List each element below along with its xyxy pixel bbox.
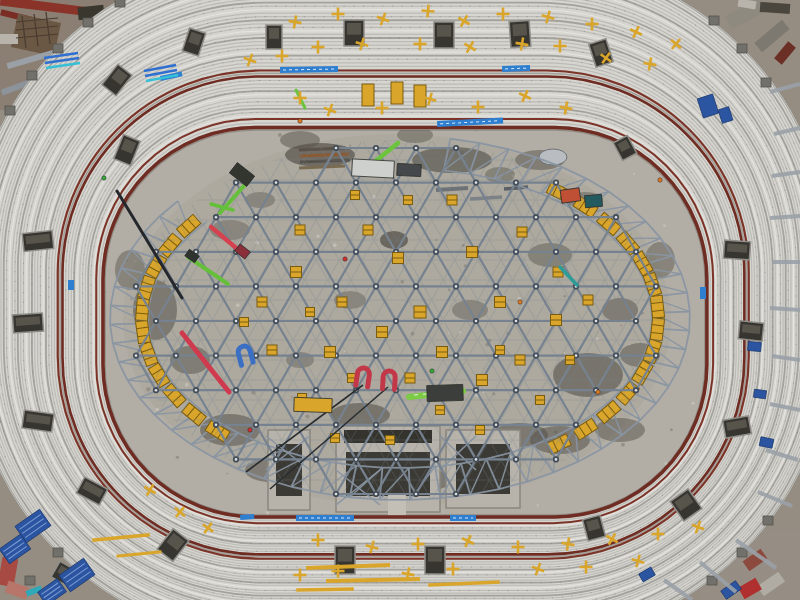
- vehicle-body: [427, 384, 464, 401]
- truss-outer-chord: [689, 312, 690, 331]
- ground-speckle: [663, 224, 666, 227]
- anchor-bar: [585, 561, 588, 574]
- vomitory-stair: [269, 28, 279, 39]
- stadium-construction-aerial-photo: [0, 0, 800, 600]
- ground-speckle: [266, 511, 269, 514]
- lattice-node-cap: [515, 458, 518, 461]
- anchor-bar: [317, 534, 320, 547]
- anchor-bar: [657, 528, 660, 541]
- ground-speckle: [349, 145, 351, 147]
- lattice-node-cap: [515, 251, 518, 254]
- lattice-node-cap: [215, 216, 218, 219]
- lattice-node-cap: [295, 424, 298, 427]
- lattice-node-cap: [375, 493, 378, 496]
- support-tower: [136, 298, 150, 321]
- support-tower: [650, 318, 664, 341]
- lattice-node-cap: [595, 320, 598, 323]
- lattice-node-cap: [595, 251, 598, 254]
- lattice-node-cap: [335, 493, 338, 496]
- ground-speckle: [155, 408, 159, 412]
- anchor-bar: [299, 569, 302, 582]
- lattice-node-cap: [475, 320, 478, 323]
- debris: [0, 34, 18, 44]
- lattice-node-cap: [515, 181, 518, 184]
- facade-post: [737, 548, 747, 557]
- anchor-bar: [317, 41, 320, 54]
- lattice-node-cap: [535, 216, 538, 219]
- tarp-group: [754, 389, 767, 399]
- facade-post: [763, 516, 773, 525]
- wet-ground-patch: [280, 131, 320, 149]
- lattice-node-cap: [355, 181, 358, 184]
- vehicle-body: [352, 159, 395, 178]
- steel-beam: [328, 579, 418, 581]
- ground-speckle: [664, 462, 667, 465]
- vomitory-stair: [428, 549, 442, 562]
- anchor-bar: [559, 40, 562, 53]
- anchor-bar: [502, 8, 505, 21]
- truss-outer-chord: [110, 305, 111, 324]
- vomitory: [12, 313, 43, 333]
- lattice-node-cap: [495, 216, 498, 219]
- lattice-node-cap: [455, 424, 458, 427]
- support-tower: [391, 82, 403, 104]
- lattice-node-cap: [455, 285, 458, 288]
- lattice-node-cap: [295, 216, 298, 219]
- lattice-node-cap: [335, 216, 338, 219]
- anchor-bar: [337, 8, 340, 21]
- lattice-node-cap: [615, 285, 618, 288]
- worker-dot: [658, 178, 662, 182]
- vomitory-stair: [16, 316, 41, 326]
- ground-speckle: [670, 428, 673, 431]
- lattice-node-cap: [575, 424, 578, 427]
- tarp-group: [748, 341, 762, 351]
- lattice-node-cap: [475, 458, 478, 461]
- lattice-node-cap: [375, 216, 378, 219]
- lattice-node-cap: [635, 389, 638, 392]
- vomitory-stair: [512, 24, 527, 37]
- lattice-node-cap: [455, 493, 458, 496]
- anchor-bar: [417, 538, 420, 551]
- facade-post: [5, 106, 15, 115]
- metal-parts-pile: [539, 149, 567, 165]
- worker-dot: [518, 300, 522, 304]
- lattice-node-cap: [535, 424, 538, 427]
- anchor-bar: [452, 563, 455, 576]
- lattice-node-cap: [235, 458, 238, 461]
- facade-post: [53, 548, 63, 557]
- ground-speckle: [633, 173, 635, 175]
- ground-speckle: [306, 414, 310, 418]
- lattice-node-cap: [275, 389, 278, 392]
- vomitory-stair: [437, 25, 451, 37]
- vomitory: [425, 546, 445, 574]
- ground-speckle: [692, 402, 695, 405]
- lattice-node-cap: [215, 354, 218, 357]
- lattice-node-cap: [235, 389, 238, 392]
- lattice-node-cap: [155, 389, 158, 392]
- radial-beam: [770, 308, 800, 310]
- lattice-node-cap: [515, 320, 518, 323]
- lattice-node-cap: [435, 251, 438, 254]
- lattice-node-cap: [375, 424, 378, 427]
- lattice-node-cap: [615, 354, 618, 357]
- lattice-node-cap: [195, 320, 198, 323]
- lattice-node-cap: [335, 424, 338, 427]
- facade-post: [761, 78, 771, 87]
- lattice-node-cap: [375, 147, 378, 150]
- support-tower: [362, 84, 374, 106]
- lattice-node-cap: [535, 285, 538, 288]
- anchor-bar: [381, 102, 384, 115]
- lattice-node-cap: [315, 320, 318, 323]
- lattice-node-cap: [555, 389, 558, 392]
- facade-post: [115, 0, 125, 7]
- blue-banner: [68, 280, 74, 290]
- lattice-node-cap: [455, 147, 458, 150]
- lattice-node-cap: [275, 181, 278, 184]
- lattice-node-cap: [275, 251, 278, 254]
- ground-speckle: [236, 303, 240, 307]
- lattice-node-cap: [315, 181, 318, 184]
- lattice-node-cap: [555, 251, 558, 254]
- worker-dot: [248, 428, 252, 432]
- ground-speckle: [185, 383, 189, 387]
- lattice-node-cap: [435, 458, 438, 461]
- vomitory-stair: [338, 549, 352, 562]
- facade-post: [709, 16, 719, 25]
- vomitory: [266, 25, 282, 49]
- lattice-node-cap: [275, 458, 278, 461]
- blue-banner: [700, 287, 706, 299]
- lattice-node-cap: [355, 320, 358, 323]
- lattice-node-cap: [135, 285, 138, 288]
- lattice-node-cap: [415, 354, 418, 357]
- lattice-node-cap: [335, 285, 338, 288]
- anchor-bar: [299, 92, 302, 105]
- vehicle-body: [585, 194, 603, 207]
- lattice-node-cap: [555, 181, 558, 184]
- anchor-bar: [419, 38, 422, 51]
- lattice-node-cap: [255, 354, 258, 357]
- facade-post: [53, 44, 63, 53]
- facade-post: [83, 18, 93, 27]
- lattice-node-cap: [275, 320, 278, 323]
- lattice-node-cap: [455, 354, 458, 357]
- lattice-node-cap: [615, 216, 618, 219]
- ground-speckle: [563, 295, 566, 298]
- lattice-node-cap: [535, 354, 538, 357]
- lattice-node-cap: [235, 320, 238, 323]
- worker-dot: [298, 119, 302, 123]
- blue-banner: [240, 514, 254, 520]
- ground-speckle: [564, 352, 566, 354]
- steel-beam: [298, 589, 352, 590]
- vomitory: [738, 321, 764, 341]
- ground-speckle: [176, 456, 179, 459]
- lattice-node-cap: [255, 424, 258, 427]
- lattice-node-cap: [295, 354, 298, 357]
- lattice-node-cap: [355, 251, 358, 254]
- ground-speckle: [536, 504, 538, 506]
- facade-post: [27, 71, 37, 80]
- lattice-node-cap: [575, 354, 578, 357]
- lattice-node-cap: [215, 285, 218, 288]
- lattice-node-cap: [335, 147, 338, 150]
- lattice-node-cap: [635, 320, 638, 323]
- lattice-node-cap: [515, 389, 518, 392]
- lattice-node-cap: [235, 181, 238, 184]
- lattice-node-cap: [475, 389, 478, 392]
- vomitory: [434, 22, 454, 48]
- lattice-node-cap: [355, 458, 358, 461]
- vomitory: [22, 230, 54, 251]
- ground-speckle: [291, 396, 293, 398]
- vomitory-stair: [347, 23, 361, 35]
- lattice-node-cap: [495, 285, 498, 288]
- lattice-node-cap: [195, 251, 198, 254]
- lattice-node-cap: [655, 354, 658, 357]
- vomitory: [723, 240, 750, 260]
- lattice-node-cap: [435, 320, 438, 323]
- lattice-node-cap: [315, 251, 318, 254]
- worker-dot: [343, 257, 347, 261]
- lattice-node-cap: [315, 389, 318, 392]
- tower-frame: [136, 298, 150, 321]
- facade-post: [737, 44, 747, 53]
- lattice-node-cap: [455, 216, 458, 219]
- lattice-node-cap: [315, 458, 318, 461]
- lattice-node-cap: [635, 251, 638, 254]
- lattice-node-cap: [295, 285, 298, 288]
- anchor-bar: [517, 541, 520, 554]
- lattice-node-cap: [415, 493, 418, 496]
- lattice-node-cap: [655, 285, 658, 288]
- lattice-node-cap: [415, 424, 418, 427]
- lattice-node-cap: [155, 320, 158, 323]
- blue-tarp: [754, 389, 767, 399]
- ground-speckle: [621, 443, 625, 447]
- lattice-node-cap: [395, 320, 398, 323]
- facade-post: [25, 576, 35, 585]
- lattice-node-cap: [435, 181, 438, 184]
- vomitory: [344, 20, 364, 46]
- lattice-node-cap: [395, 458, 398, 461]
- radial-beam: [770, 216, 800, 218]
- tower-frame: [650, 318, 664, 341]
- ground-speckle: [226, 473, 228, 475]
- ground-speckle: [333, 243, 337, 247]
- debris: [760, 2, 791, 14]
- worker-dot: [596, 390, 600, 394]
- lattice-node-cap: [495, 424, 498, 427]
- support-tower: [414, 85, 426, 107]
- aerial-photo-canvas: [0, 0, 800, 600]
- lattice-node-cap: [375, 285, 378, 288]
- pit-detail: [388, 494, 406, 518]
- lattice-node-cap: [375, 354, 378, 357]
- worker-dot: [102, 176, 106, 180]
- worker-dot: [430, 369, 434, 373]
- lattice-node-cap: [255, 285, 258, 288]
- tower-frame: [650, 295, 664, 318]
- anchor-bar: [477, 101, 480, 114]
- lattice-node-cap: [555, 458, 558, 461]
- lattice-node-cap: [215, 424, 218, 427]
- vehicle-body: [560, 188, 581, 204]
- lattice-node-cap: [135, 354, 138, 357]
- ground-speckle: [278, 133, 282, 137]
- ground-speckle: [316, 234, 319, 237]
- ground-speckle: [620, 324, 622, 326]
- blue-tarp: [748, 341, 762, 351]
- lattice-node-cap: [175, 354, 178, 357]
- lattice-node-cap: [195, 389, 198, 392]
- lattice-node-cap: [395, 181, 398, 184]
- lattice-node-cap: [575, 216, 578, 219]
- vehicle-body: [294, 397, 332, 412]
- lattice-node-cap: [415, 147, 418, 150]
- lattice-node-cap: [415, 285, 418, 288]
- lattice-node-cap: [415, 216, 418, 219]
- vomitory-stair: [727, 243, 748, 252]
- anchor-bar: [281, 50, 284, 63]
- vehicle-body: [397, 163, 422, 176]
- material-stack: [299, 166, 345, 168]
- support-tower: [650, 295, 664, 318]
- vomitory: [22, 410, 54, 432]
- lattice-node-cap: [255, 216, 258, 219]
- vomitory: [723, 416, 752, 438]
- lattice-node-cap: [475, 181, 478, 184]
- anchor-bar: [591, 18, 594, 31]
